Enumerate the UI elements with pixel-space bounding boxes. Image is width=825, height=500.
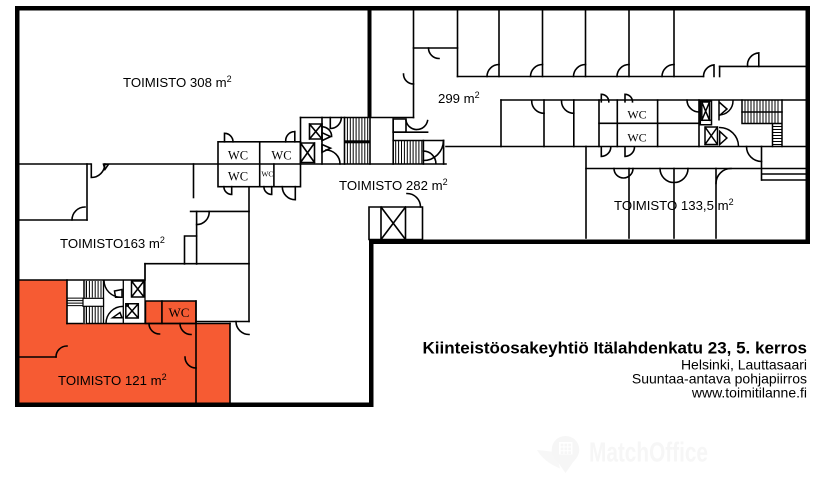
svg-text:TOIMISTO 133,5 m2: TOIMISTO 133,5 m2 — [614, 197, 734, 213]
svg-text:WC: WC — [261, 170, 273, 179]
svg-text:WC: WC — [169, 305, 190, 320]
svg-text:TOIMISTO 308 m2: TOIMISTO 308 m2 — [123, 74, 232, 90]
svg-text:299 m2: 299 m2 — [438, 90, 480, 106]
svg-text:www.toimitilanne.fi: www.toimitilanne.fi — [691, 385, 807, 401]
svg-text:MatchOffice: MatchOffice — [589, 437, 708, 468]
svg-text:WC: WC — [271, 148, 291, 162]
svg-text:WC: WC — [627, 108, 646, 122]
svg-text:Kiinteistöosakeyhtiö Itälahden: Kiinteistöosakeyhtiö Itälahdenkatu 23, 5… — [422, 339, 807, 358]
svg-text:TOIMISTO 282 m2: TOIMISTO 282 m2 — [339, 177, 448, 193]
svg-text:WC: WC — [228, 148, 248, 162]
svg-text:TOIMISTO 121 m2: TOIMISTO 121 m2 — [58, 372, 167, 388]
svg-text:WC: WC — [627, 131, 646, 145]
svg-text:TOIMISTO163 m2: TOIMISTO163 m2 — [60, 235, 165, 251]
svg-text:WC: WC — [228, 170, 248, 184]
